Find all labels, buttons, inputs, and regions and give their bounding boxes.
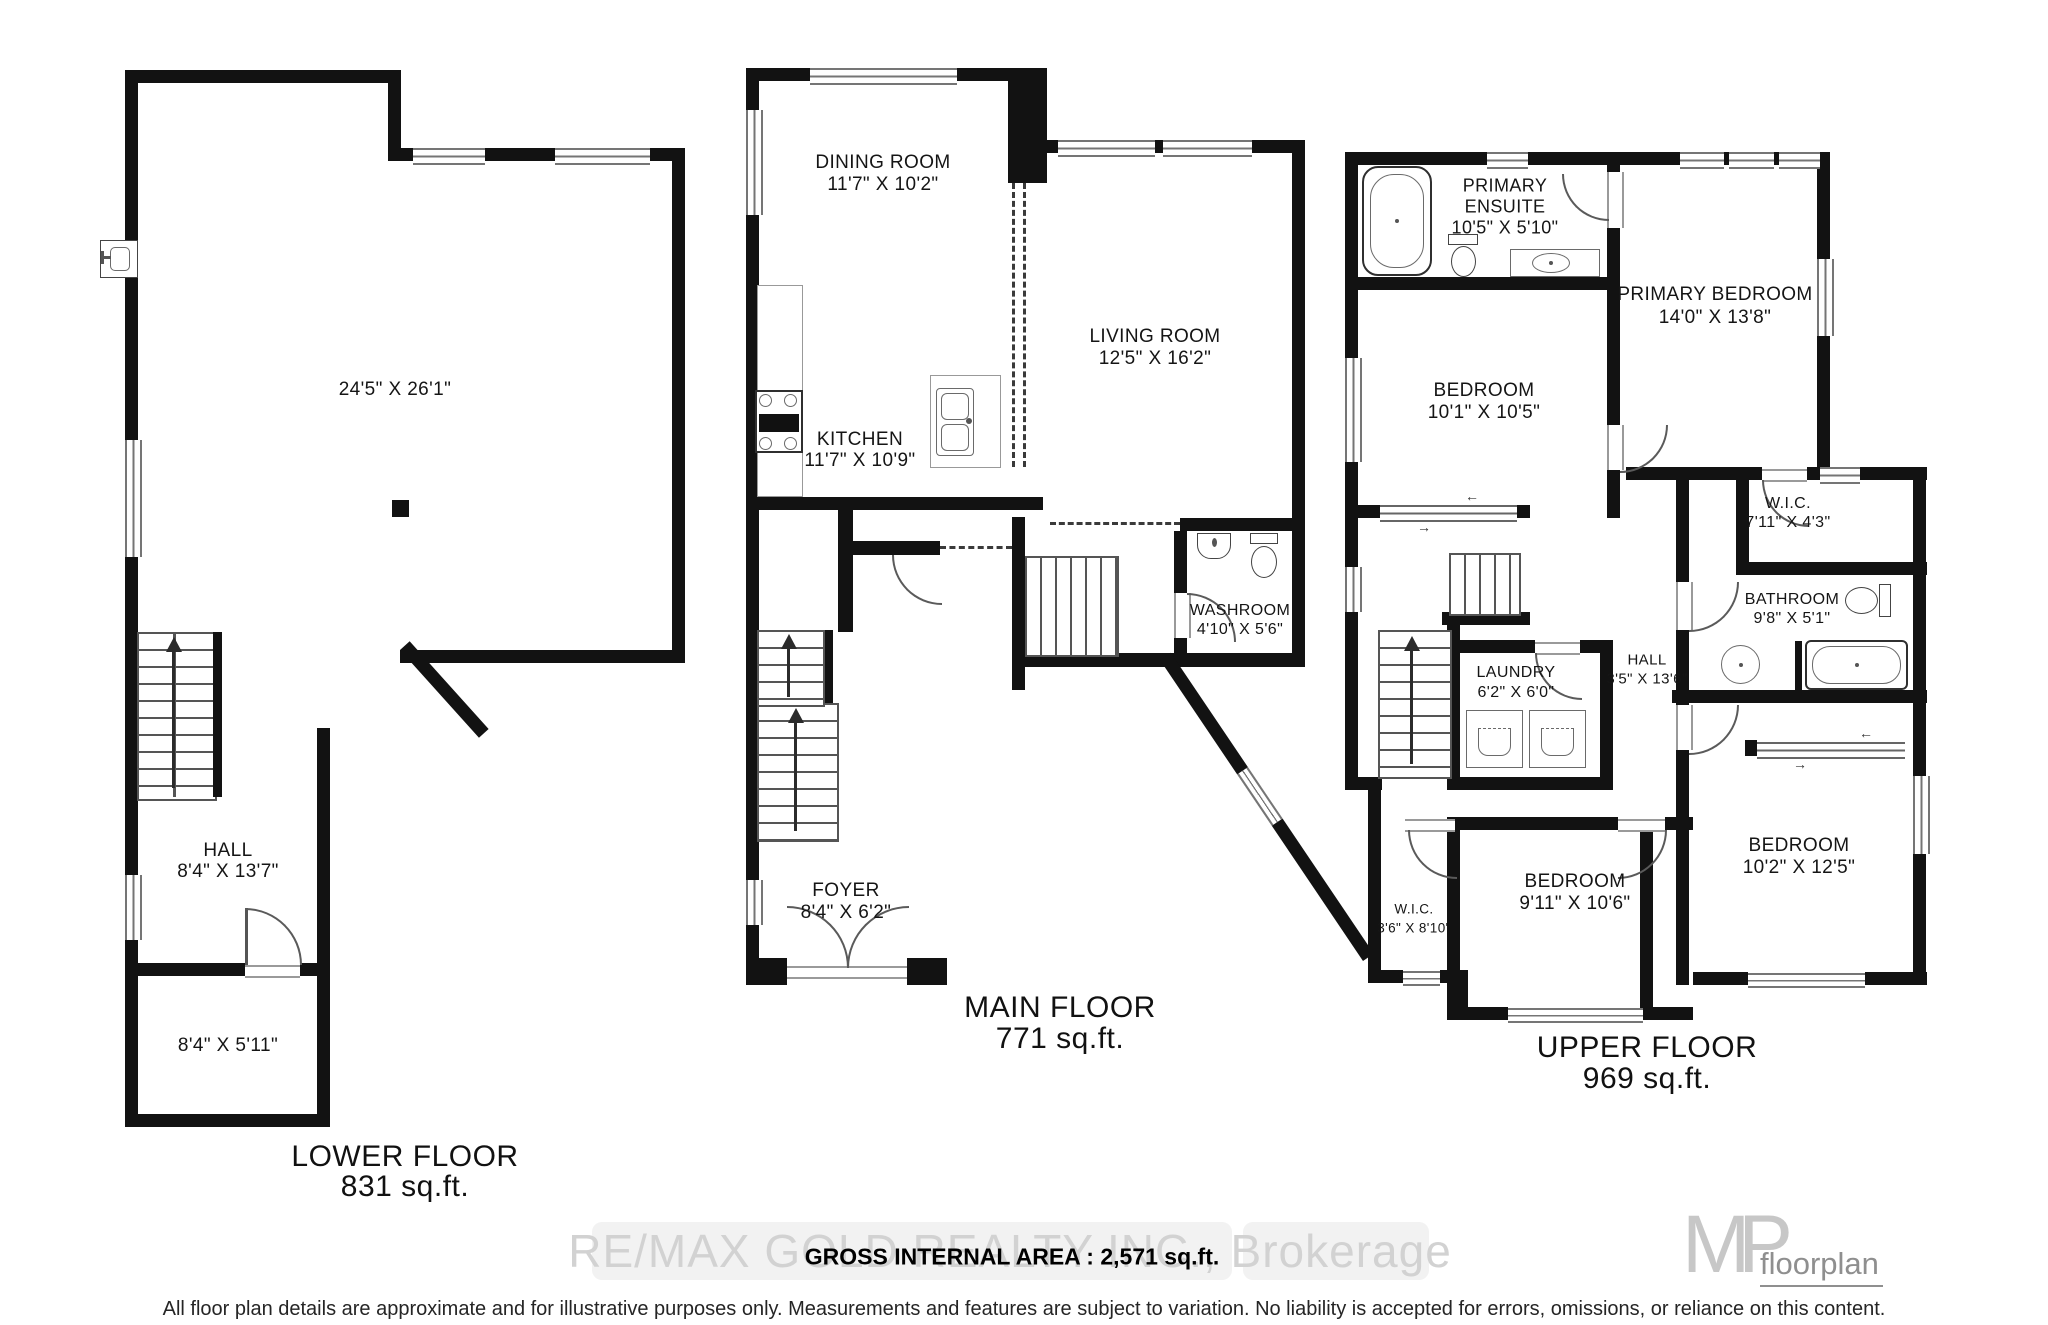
laundry-dims: 6'2" X 6'0"	[1477, 684, 1554, 702]
drain-icon	[1395, 219, 1399, 223]
wall	[400, 650, 685, 663]
bedroom-middle-label: BEDROOM	[1525, 871, 1626, 893]
stair-landing	[1449, 553, 1521, 616]
wall	[317, 963, 330, 1127]
dashed-opening	[1012, 183, 1026, 467]
sink-basin	[941, 424, 969, 451]
closet-stub	[1745, 740, 1757, 756]
primary-ensuite-label2: ENSUITE	[1465, 197, 1546, 218]
washroom-label: WASHROOM	[1190, 602, 1290, 620]
primary-ensuite-dims: 10'5" X 5'10"	[1452, 218, 1559, 239]
wall	[1008, 68, 1047, 183]
wall	[747, 958, 787, 985]
wic-left-dims: 3'6" X 8'10"	[1377, 921, 1451, 936]
upper-floor-title: UPPER FLOOR	[1537, 1031, 1758, 1065]
wall	[1913, 467, 1926, 776]
window	[1403, 971, 1440, 986]
stair-arrow-stem	[1410, 649, 1413, 764]
foyer-label: FOYER	[812, 880, 879, 902]
drain-icon	[1855, 663, 1859, 667]
door-arc	[1689, 582, 1739, 632]
toilet-bowl	[1845, 587, 1878, 614]
window	[1487, 152, 1528, 169]
wic-right-dims: 7'11" X 4'3"	[1745, 514, 1830, 532]
window	[1237, 767, 1282, 826]
dining-room-dims: 11'7" X 10'2"	[827, 174, 938, 196]
staircase-down	[1025, 556, 1119, 657]
window	[746, 880, 763, 925]
wall	[1693, 972, 1748, 985]
wall	[1913, 854, 1926, 985]
upper-hall-dims: 3'5" X 13'6"	[1606, 671, 1687, 688]
wall	[1345, 152, 1358, 790]
wall	[1795, 641, 1802, 690]
wall	[1665, 817, 1693, 830]
support-post	[392, 500, 409, 517]
toilet-icon	[1879, 584, 1891, 617]
wall	[1817, 336, 1830, 480]
dining-room-label: DINING ROOM	[815, 152, 950, 174]
window	[125, 875, 142, 940]
door-threshold	[1607, 172, 1624, 228]
wall	[1455, 1007, 1508, 1020]
window	[1163, 140, 1252, 157]
slide-arrow-icon: ←	[1859, 725, 1873, 741]
utility-sink-basin	[110, 247, 130, 271]
wall	[1736, 562, 1927, 575]
toilet-bowl	[1251, 546, 1277, 578]
wall	[1174, 638, 1187, 653]
wall	[125, 963, 245, 976]
disclaimer-text: All floor plan details are approximate a…	[0, 1298, 2048, 1321]
wall	[1368, 970, 1403, 983]
wall	[907, 958, 947, 985]
wall	[1180, 518, 1305, 531]
staircase	[1378, 630, 1452, 779]
door-threshold	[245, 965, 300, 978]
door-arc	[1408, 830, 1457, 879]
sink-basin	[941, 393, 969, 420]
wall	[1447, 817, 1618, 830]
burner-icon	[784, 437, 797, 450]
primary-ensuite-label1: PRIMARY	[1463, 176, 1548, 197]
faucet-icon	[966, 418, 972, 424]
door-arc	[892, 555, 942, 605]
window	[1508, 1008, 1643, 1023]
bathroom-label: BATHROOM	[1745, 591, 1839, 609]
bedroom-left-label: BEDROOM	[1434, 380, 1535, 402]
slide-arrow-icon: →	[1793, 756, 1807, 772]
wall	[1292, 140, 1305, 667]
wall	[1345, 777, 1382, 790]
burner-icon	[759, 437, 772, 450]
wall	[1345, 277, 1620, 290]
slide-arrow-icon: →	[1417, 519, 1431, 535]
lower-storage-dims: 8'4" X 5'11"	[178, 1035, 278, 1057]
wall	[1607, 470, 1620, 518]
door-arc	[1689, 705, 1739, 755]
wall	[1368, 790, 1381, 983]
window	[1058, 140, 1155, 157]
primary-bedroom-label: PRIMARY BEDROOM	[1617, 284, 1812, 306]
bedroom-right-dims: 10'2" X 12'5"	[1743, 857, 1856, 879]
wall	[1517, 505, 1530, 518]
wall	[1607, 163, 1620, 172]
wall	[1607, 228, 1620, 425]
kitchen-dims: 11'7" X 10'9"	[804, 450, 915, 472]
wall	[1626, 467, 1762, 480]
window	[1817, 259, 1834, 336]
wall	[1600, 640, 1613, 790]
staircase	[137, 632, 217, 801]
dashed-opening	[940, 546, 1012, 549]
bedroom-left-dims: 10'1" X 10'5"	[1428, 402, 1541, 424]
slide-arrow-icon: ←	[1465, 488, 1479, 504]
wic-right-label: W.I.C.	[1765, 495, 1811, 513]
faucet-icon	[1212, 538, 1217, 547]
kitchen-label: KITCHEN	[817, 429, 903, 451]
dryer-basket	[1541, 728, 1574, 756]
wall	[1865, 972, 1927, 985]
window	[1779, 152, 1820, 169]
wall	[672, 148, 685, 663]
window	[1680, 152, 1724, 169]
window	[1820, 467, 1860, 484]
angled-wall	[1160, 653, 1374, 961]
toilet-icon	[1250, 533, 1278, 544]
burner-icon	[759, 394, 772, 407]
window	[810, 68, 957, 85]
wall	[1345, 505, 1380, 518]
dashed-opening	[1050, 522, 1180, 525]
stair-arrow-stem	[787, 647, 790, 697]
gross-area-text: GROSS INTERNAL AREA : 2,571 sq.ft.	[805, 1244, 1220, 1271]
window	[1748, 973, 1865, 988]
stair-arrow-stem	[794, 721, 797, 831]
wic-left-label: W.I.C.	[1394, 902, 1433, 917]
door-arc	[245, 908, 302, 965]
primary-bedroom-dims: 14'0" X 13'8"	[1659, 307, 1772, 329]
stair-arrow-stem	[172, 650, 175, 788]
living-room-dims: 12'5" X 16'2"	[1099, 348, 1212, 370]
window	[1345, 567, 1362, 612]
lower-hall-dims: 8'4" X 13'7"	[177, 861, 279, 883]
door-arc	[1620, 425, 1668, 473]
bathroom-dims: 9'8" X 5'1"	[1753, 610, 1830, 628]
living-room-label: LIVING ROOM	[1089, 326, 1220, 348]
toilet-bowl	[1451, 246, 1476, 277]
wall	[1174, 531, 1187, 593]
wall	[1807, 467, 1820, 480]
window	[1913, 776, 1930, 854]
wall	[1676, 750, 1689, 985]
bedroom-middle-dims: 9'11" X 10'6"	[1519, 893, 1630, 915]
window	[1729, 152, 1774, 169]
burner-icon	[784, 394, 797, 407]
laundry-label: LAUNDRY	[1477, 664, 1556, 682]
washer-basket	[1478, 728, 1511, 756]
wall	[1440, 970, 1460, 983]
main-floor-title: MAIN FLOOR	[964, 991, 1156, 1025]
wall	[1676, 480, 1689, 582]
upper-hall-label: HALL	[1627, 652, 1666, 669]
floorplan-canvas: 24'5" X 26'1" HALL 8'4" X 13'7" 8'4" X 5…	[0, 0, 2048, 1325]
wall	[125, 70, 400, 83]
window	[1345, 358, 1362, 462]
wall	[853, 541, 940, 555]
window	[125, 440, 142, 557]
wall	[1447, 777, 1613, 790]
faucet-icon	[101, 251, 104, 264]
wall	[1460, 640, 1535, 653]
faucet-icon	[1739, 663, 1743, 667]
wall	[758, 497, 1043, 510]
lower-hall-label: HALL	[203, 840, 252, 862]
window	[413, 148, 485, 165]
floorplan-logo-text: floorplan	[1760, 1246, 1883, 1287]
sliding-closet-doors	[1757, 742, 1905, 759]
faucet-icon	[1549, 261, 1553, 265]
door-arc	[1562, 174, 1609, 221]
lower-floor-title: LOWER FLOOR	[291, 1140, 518, 1174]
stove-panel	[759, 414, 799, 432]
foyer-dims: 8'4" X 6'2"	[801, 902, 892, 924]
lower-open-area-dims: 24'5" X 26'1"	[339, 379, 452, 401]
sliding-closet-doors	[1380, 505, 1517, 522]
wall	[125, 1114, 330, 1127]
upper-floor-area: 969 sq.ft.	[1583, 1062, 1711, 1096]
lower-floor-area: 831 sq.ft.	[341, 1170, 469, 1204]
stair-wall	[213, 632, 222, 797]
wall	[1672, 690, 1927, 703]
bedroom-right-label: BEDROOM	[1749, 835, 1850, 857]
staircase	[757, 703, 839, 842]
wall	[317, 728, 330, 976]
washroom-dims: 4'10" X 5'6"	[1197, 621, 1283, 639]
main-floor-area: 771 sq.ft.	[996, 1022, 1124, 1056]
wall	[838, 510, 853, 632]
window	[746, 110, 763, 215]
window	[555, 148, 650, 165]
